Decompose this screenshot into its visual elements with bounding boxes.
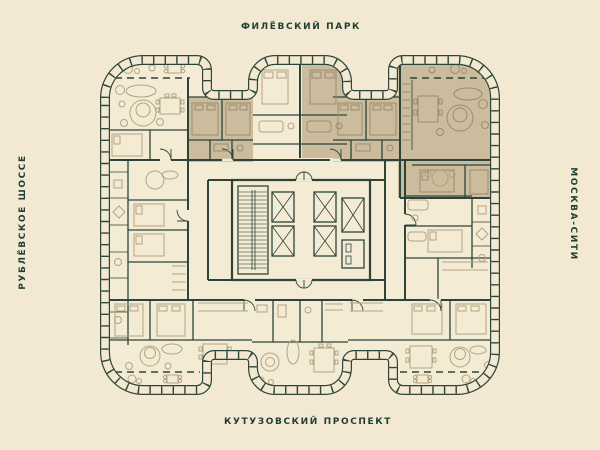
building	[105, 60, 495, 390]
street-label-north: ФИЛЁВСКИЙ ПАРК	[241, 20, 361, 32]
street-label-south: КУТУЗОВСКИЙ ПРОСПЕКТ	[224, 415, 392, 427]
street-label-east: МОСКВА-СИТИ	[568, 167, 578, 261]
highlight-zone	[188, 97, 253, 162]
floor-plan-poster: ФИЛЁВСКИЙ ПАРК КУТУЗОВСКИЙ ПРОСПЕКТ РУБЛ…	[0, 0, 600, 450]
floor-plan-canvas: ФИЛЁВСКИЙ ПАРК КУТУЗОВСКИЙ ПРОСПЕКТ РУБЛ…	[0, 0, 600, 450]
street-label-west: РУБЛЁВСКОЕ ШОССЕ	[17, 154, 28, 290]
